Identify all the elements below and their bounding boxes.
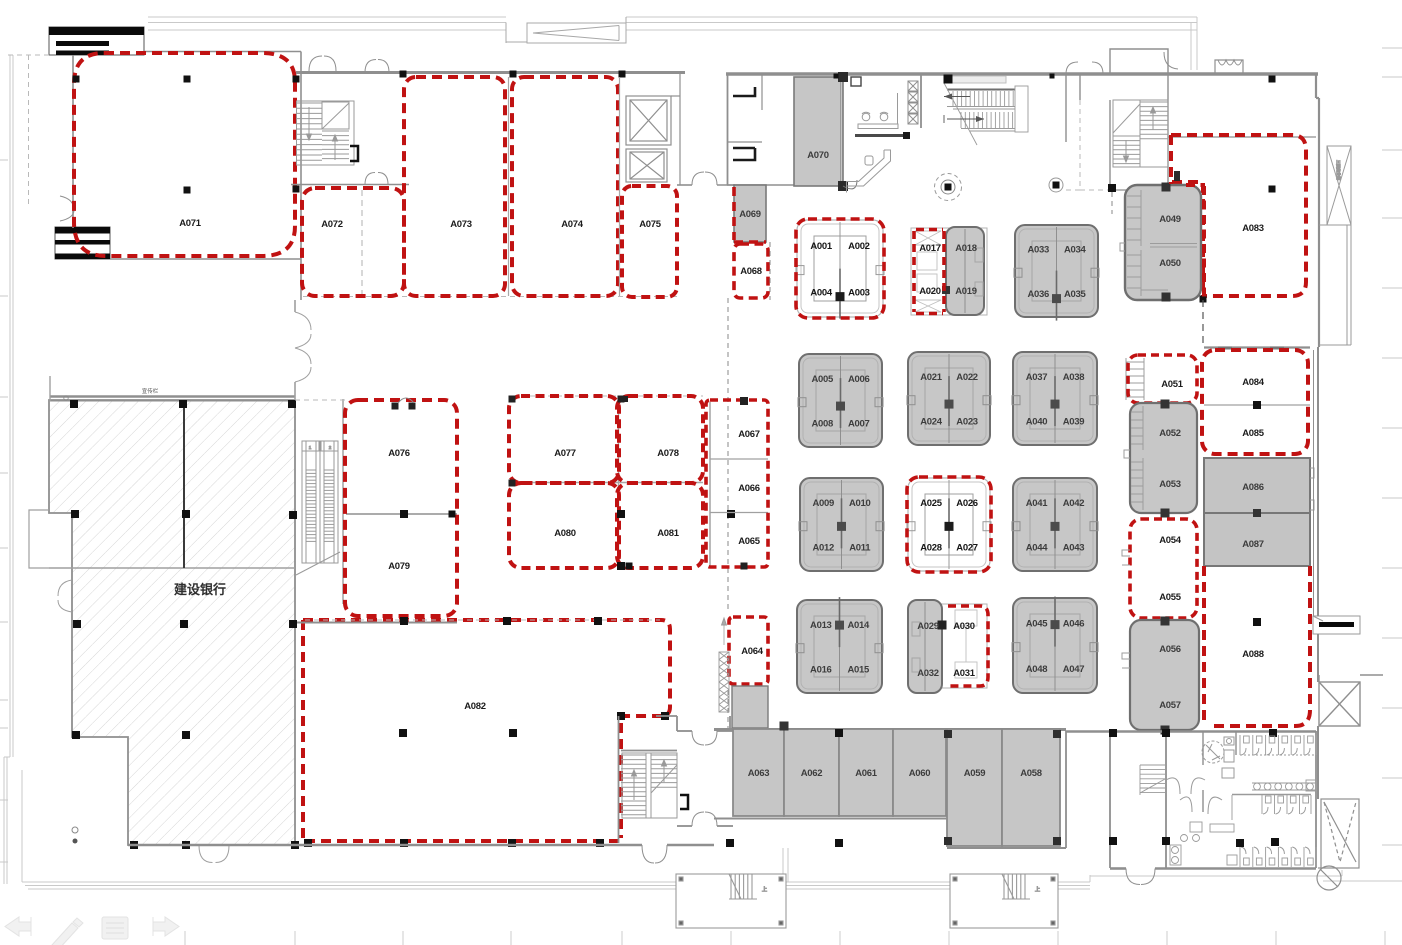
svg-text:A059: A059 bbox=[964, 768, 986, 779]
svg-text:A057: A057 bbox=[1159, 700, 1181, 711]
svg-text:A082: A082 bbox=[464, 701, 486, 712]
svg-text:A054: A054 bbox=[1159, 535, 1182, 546]
svg-text:A069: A069 bbox=[739, 209, 761, 220]
svg-text:A001: A001 bbox=[810, 241, 833, 252]
svg-text:A067: A067 bbox=[738, 429, 760, 440]
svg-text:A009: A009 bbox=[812, 498, 834, 509]
svg-text:A036: A036 bbox=[1027, 289, 1049, 300]
svg-text:A020: A020 bbox=[919, 286, 941, 297]
svg-text:A076: A076 bbox=[388, 448, 410, 459]
svg-text:宣传栏: 宣传栏 bbox=[142, 387, 159, 395]
svg-text:A006: A006 bbox=[848, 374, 870, 385]
svg-text:A070: A070 bbox=[807, 150, 829, 161]
svg-text:A018: A018 bbox=[955, 243, 977, 254]
svg-text:A005: A005 bbox=[811, 374, 834, 385]
svg-text:A043: A043 bbox=[1063, 543, 1085, 554]
svg-text:A073: A073 bbox=[450, 219, 472, 230]
svg-text:A061: A061 bbox=[855, 768, 878, 779]
svg-text:A039: A039 bbox=[1063, 417, 1085, 428]
svg-text:A087: A087 bbox=[1242, 539, 1264, 550]
svg-text:A025: A025 bbox=[920, 498, 943, 509]
svg-text:A022: A022 bbox=[956, 372, 978, 383]
svg-text:A015: A015 bbox=[847, 665, 870, 676]
svg-text:A050: A050 bbox=[1159, 258, 1181, 269]
svg-text:A040: A040 bbox=[1026, 417, 1048, 428]
svg-text:A038: A038 bbox=[1063, 372, 1085, 383]
svg-text:A058: A058 bbox=[1020, 768, 1042, 779]
svg-text:A041: A041 bbox=[1026, 498, 1049, 509]
svg-text:A074: A074 bbox=[561, 219, 584, 230]
svg-text:A063: A063 bbox=[748, 768, 770, 779]
svg-text:A033: A033 bbox=[1027, 245, 1049, 256]
svg-text:A019: A019 bbox=[955, 286, 977, 297]
svg-text:A030: A030 bbox=[953, 621, 975, 632]
svg-text:A035: A035 bbox=[1064, 289, 1087, 300]
svg-text:A083: A083 bbox=[1242, 223, 1264, 234]
svg-text:A075: A075 bbox=[639, 219, 662, 230]
svg-text:A024: A024 bbox=[920, 417, 943, 428]
svg-text:A048: A048 bbox=[1026, 664, 1048, 675]
svg-text:A071: A071 bbox=[179, 218, 202, 229]
svg-text:A010: A010 bbox=[849, 498, 871, 509]
svg-text:A013: A013 bbox=[810, 620, 832, 631]
svg-text:A045: A045 bbox=[1026, 619, 1049, 630]
svg-text:A056: A056 bbox=[1159, 644, 1181, 655]
svg-text:A078: A078 bbox=[657, 448, 679, 459]
svg-text:A007: A007 bbox=[848, 419, 870, 430]
svg-text:A066: A066 bbox=[738, 483, 760, 494]
svg-text:A081: A081 bbox=[657, 528, 680, 539]
svg-text:A079: A079 bbox=[388, 561, 410, 572]
svg-text:A047: A047 bbox=[1063, 664, 1085, 675]
svg-text:A017: A017 bbox=[919, 243, 941, 254]
svg-text:A051: A051 bbox=[1161, 379, 1184, 390]
svg-text:A062: A062 bbox=[801, 768, 823, 779]
svg-text:A031: A031 bbox=[953, 668, 976, 679]
svg-text:A027: A027 bbox=[956, 543, 978, 554]
svg-text:A042: A042 bbox=[1063, 498, 1085, 509]
svg-text:A016: A016 bbox=[810, 665, 832, 676]
svg-text:建设银行: 建设银行 bbox=[174, 582, 226, 597]
svg-text:上: 上 bbox=[1035, 886, 1040, 893]
svg-text:A023: A023 bbox=[956, 417, 978, 428]
svg-text:A049: A049 bbox=[1159, 214, 1181, 225]
svg-text:A012: A012 bbox=[812, 543, 834, 554]
svg-text:A046: A046 bbox=[1063, 619, 1085, 630]
svg-text:A060: A060 bbox=[909, 768, 931, 779]
svg-text:A034: A034 bbox=[1064, 245, 1087, 256]
svg-text:A055: A055 bbox=[1159, 592, 1182, 603]
svg-text:A064: A064 bbox=[741, 646, 764, 657]
svg-text:A003: A003 bbox=[848, 288, 870, 299]
svg-text:A080: A080 bbox=[554, 528, 576, 539]
svg-text:A044: A044 bbox=[1026, 543, 1049, 554]
svg-text:A068: A068 bbox=[740, 266, 762, 277]
svg-text:A037: A037 bbox=[1026, 372, 1048, 383]
svg-text:A014: A014 bbox=[847, 620, 870, 631]
svg-text:A077: A077 bbox=[554, 448, 576, 459]
svg-text:A002: A002 bbox=[848, 241, 870, 252]
svg-text:A029: A029 bbox=[917, 621, 939, 632]
svg-text:A088: A088 bbox=[1242, 649, 1264, 660]
svg-text:A011: A011 bbox=[849, 543, 871, 554]
svg-text:A084: A084 bbox=[1242, 377, 1265, 388]
svg-text:A026: A026 bbox=[956, 498, 978, 509]
svg-text:三层商业街: 三层商业街 bbox=[1336, 160, 1342, 180]
svg-text:A008: A008 bbox=[811, 419, 833, 430]
svg-text:A072: A072 bbox=[321, 219, 343, 230]
svg-text:上: 上 bbox=[762, 886, 767, 893]
svg-text:A085: A085 bbox=[1242, 428, 1265, 439]
svg-text:A032: A032 bbox=[917, 668, 939, 679]
svg-text:A065: A065 bbox=[738, 536, 761, 547]
svg-text:A028: A028 bbox=[920, 543, 942, 554]
svg-text:A053: A053 bbox=[1159, 479, 1181, 490]
svg-text:A004: A004 bbox=[810, 288, 833, 299]
svg-text:A021: A021 bbox=[920, 372, 943, 383]
svg-text:A052: A052 bbox=[1159, 428, 1181, 439]
svg-text:A086: A086 bbox=[1242, 482, 1264, 493]
